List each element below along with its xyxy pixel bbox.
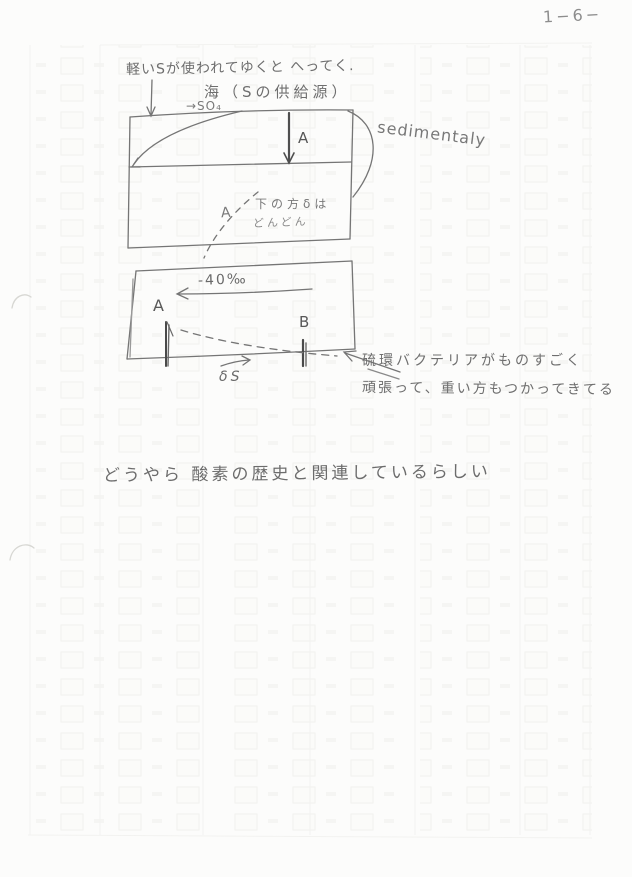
box1-right-edge: [350, 110, 353, 239]
box1-curve-a-label: A: [220, 205, 231, 223]
box2-left-inner-line: [130, 279, 133, 357]
box2-bar-a-label: A: [153, 296, 164, 316]
box1-decay-curve: [134, 111, 242, 164]
note-sea-supply-line: 海（Sの供給源）: [204, 83, 351, 102]
box2-bar-b-label: B: [299, 313, 309, 332]
box1-left-edge: [128, 117, 130, 248]
bacteria-note-line1: 硫環バクテリアがものすごく: [362, 353, 583, 371]
bacteria-note-line2: 頑張って、重い方もつかってきてる: [362, 380, 615, 400]
box2-dashed-decline: [181, 330, 337, 356]
sulfate-label: →SO₄: [186, 99, 222, 114]
conclusion-line: どうやら 酸素の歴史と関連しているらしい: [103, 462, 491, 487]
box1-arrow-a-label: A: [298, 129, 308, 148]
delta-s-axis-label: δS: [219, 369, 242, 387]
box1-bottom-edge: [128, 239, 350, 248]
box2-right-edge: [352, 261, 355, 349]
scanned-notebook-page: 1−6− 軽いSが使われてゆくと へってく. 海（Sの供給源） →SO₄ sed…: [0, 0, 632, 877]
box1-dashed-curve: [204, 192, 258, 258]
margin-arc-upper: [12, 295, 31, 308]
pencil-diagram-strokes: [0, 0, 632, 877]
box1-note-line1: 下の方δは: [255, 197, 330, 212]
box1-note-line2: どんどん: [253, 215, 309, 231]
box2-range-label: -40‰: [198, 271, 248, 290]
box1-middle-line: [129, 162, 351, 167]
margin-arc-lower: [10, 545, 34, 560]
box2-bottom-edge: [127, 349, 355, 359]
page-number: 1−6−: [543, 4, 603, 27]
down-arrow-to-box1: [151, 80, 152, 115]
box2-top-edge: [136, 261, 352, 271]
